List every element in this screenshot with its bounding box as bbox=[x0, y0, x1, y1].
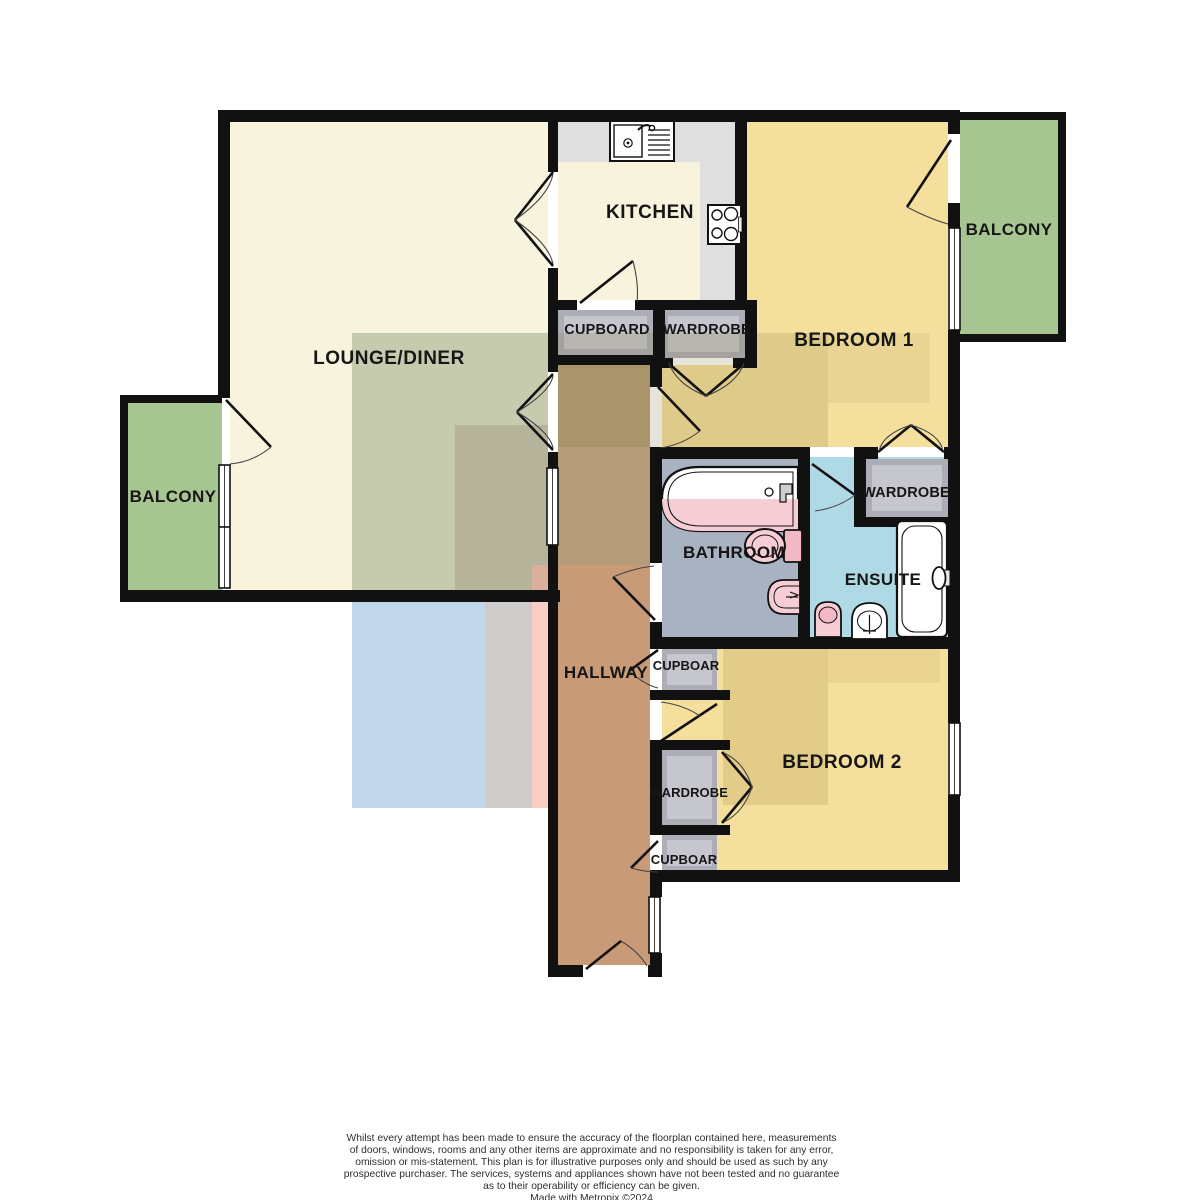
lounge-diner-label: LOUNGE/DINER bbox=[313, 348, 465, 369]
wardrobe-bedroom2-label: WARDROBE bbox=[650, 785, 728, 800]
bathtub bbox=[662, 467, 798, 531]
ensuite-toilet bbox=[815, 602, 841, 637]
ensuite-label: ENSUITE bbox=[845, 570, 921, 589]
kitchen-label: KITCHEN bbox=[606, 202, 694, 223]
ensuite-basin bbox=[852, 603, 887, 639]
floorplan-page: LOUNGE/DINER KITCHEN BEDROOM 1 BEDROOM 2… bbox=[0, 0, 1183, 1200]
kitchen-sink bbox=[610, 121, 674, 161]
cupboard-top-label: CUPBOARD bbox=[564, 322, 649, 338]
made-with-metropix: Made with Metropix ©2024 bbox=[0, 1193, 1183, 1200]
bedroom2-label: BEDROOM 2 bbox=[782, 752, 902, 773]
disclaimer-line: as to their operability or efficiency ca… bbox=[0, 1181, 1183, 1193]
bathroom-basin bbox=[768, 580, 800, 614]
wardrobe-ensuite-label: WARDROBE bbox=[862, 485, 950, 501]
disclaimer: Whilst every attempt has been made to en… bbox=[0, 1133, 1183, 1200]
hallway-label: HALLWAY bbox=[564, 663, 649, 682]
bedroom1-label: BEDROOM 1 bbox=[794, 330, 914, 351]
cupboard-bottom-label: CUPBOAR bbox=[651, 852, 718, 867]
cupboard-hall-label: CUPBOAR bbox=[653, 658, 720, 673]
disclaimer-line: prospective purchaser. The services, sys… bbox=[0, 1169, 1183, 1181]
balcony-right-label: BALCONY bbox=[966, 220, 1053, 239]
kitchen-hob bbox=[708, 205, 742, 244]
disclaimer-line: omission or mis-statement. This plan is … bbox=[0, 1157, 1183, 1169]
disclaimer-line: of doors, windows, rooms and any other i… bbox=[0, 1145, 1183, 1157]
floorplan-drawing: LOUNGE/DINER KITCHEN BEDROOM 1 BEDROOM 2… bbox=[0, 0, 1183, 1200]
balcony-left-label: BALCONY bbox=[130, 487, 217, 506]
bathroom-label: BATHROOM bbox=[683, 543, 785, 562]
disclaimer-line: Whilst every attempt has been made to en… bbox=[0, 1133, 1183, 1145]
wardrobe-top-label: WARDROBE bbox=[663, 322, 751, 338]
